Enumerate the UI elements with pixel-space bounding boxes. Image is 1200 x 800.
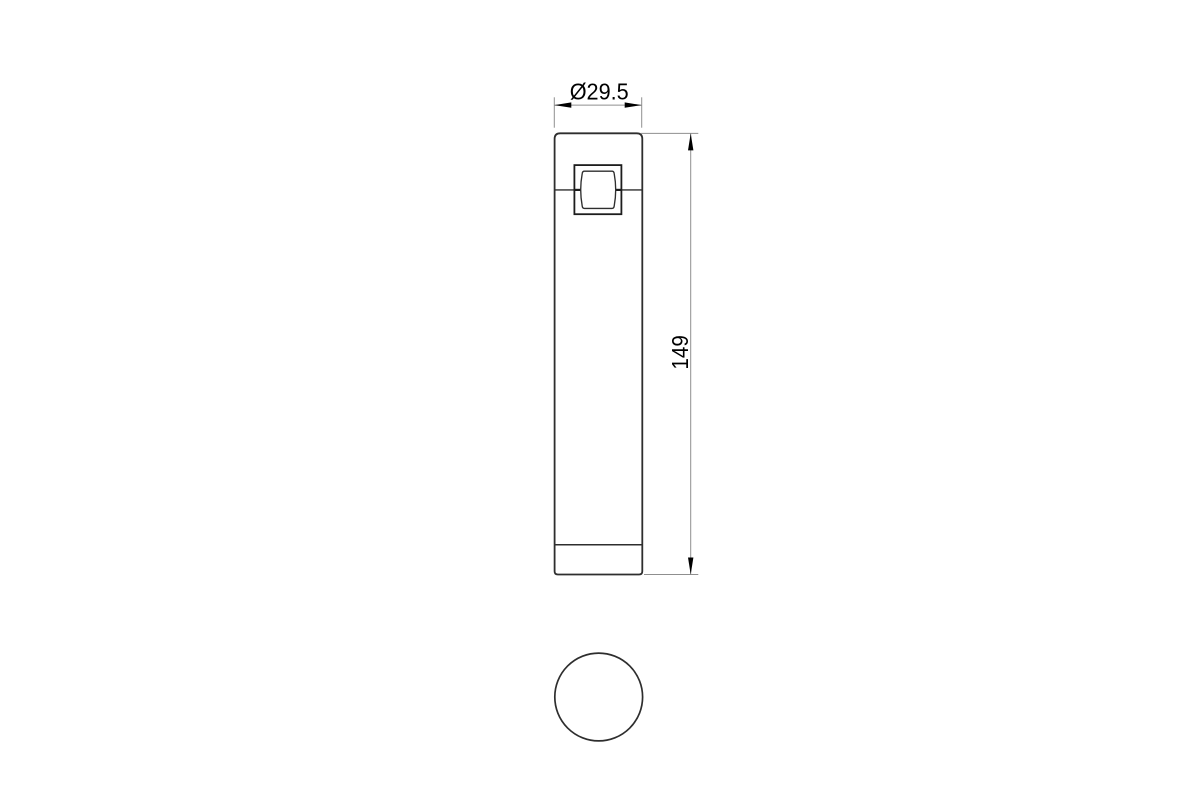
- svg-text:149: 149: [667, 335, 693, 370]
- svg-text:Ø29.5: Ø29.5: [570, 78, 629, 104]
